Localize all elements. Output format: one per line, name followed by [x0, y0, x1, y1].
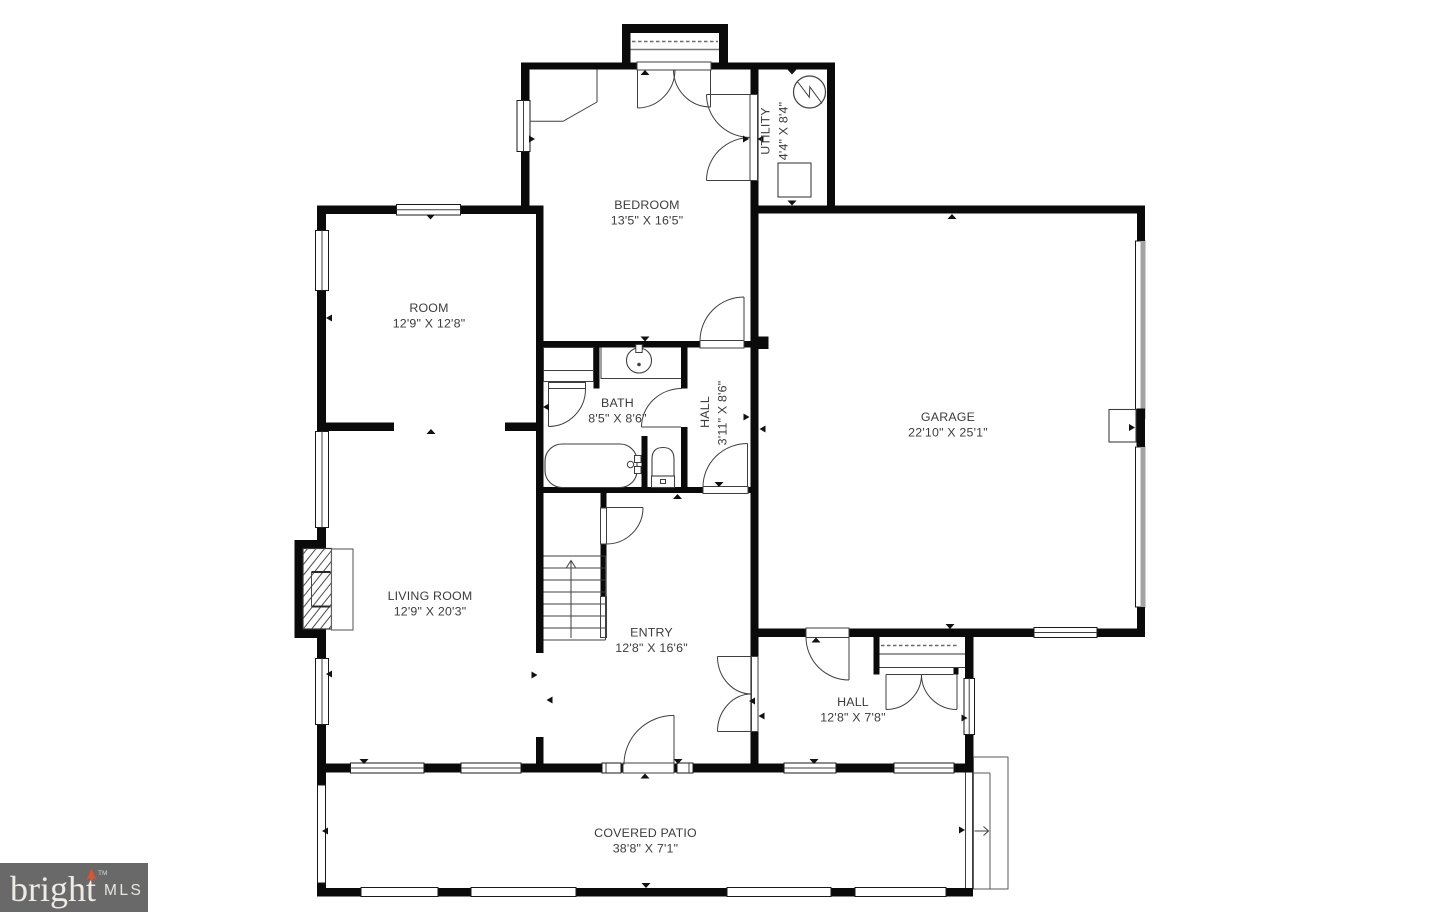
svg-text:12'9" X 20'3": 12'9" X 20'3" — [394, 605, 467, 619]
svg-text:38'8" X 7'1": 38'8" X 7'1" — [613, 842, 679, 856]
svg-text:HALL: HALL — [837, 695, 869, 709]
svg-text:HALL: HALL — [698, 396, 712, 428]
svg-text:BATH: BATH — [601, 396, 634, 410]
svg-text:12'9" X 12'8": 12'9" X 12'8" — [393, 317, 466, 331]
svg-text:TM: TM — [98, 870, 107, 877]
svg-text:UTILITY: UTILITY — [759, 107, 773, 155]
svg-text:bright: bright — [10, 869, 96, 909]
svg-text:4'4" X 8'4": 4'4" X 8'4" — [777, 102, 791, 160]
svg-text:8'5" X 8'6": 8'5" X 8'6" — [588, 412, 646, 426]
svg-text:3'11" X 8'6": 3'11" X 8'6" — [716, 381, 730, 446]
svg-text:22'10" X 25'1": 22'10" X 25'1" — [908, 426, 988, 440]
svg-text:ENTRY: ENTRY — [630, 626, 673, 640]
svg-text:MLS: MLS — [104, 882, 143, 899]
svg-text:BEDROOM: BEDROOM — [614, 198, 679, 212]
svg-text:LIVING ROOM: LIVING ROOM — [388, 589, 473, 603]
svg-text:12'8" X 7'8": 12'8" X 7'8" — [820, 711, 886, 725]
svg-text:ROOM: ROOM — [409, 301, 448, 315]
svg-text:COVERED PATIO: COVERED PATIO — [594, 826, 697, 840]
svg-text:13'5" X 16'5": 13'5" X 16'5" — [611, 214, 684, 228]
svg-text:GARAGE: GARAGE — [921, 410, 975, 424]
svg-text:12'8" X 16'6": 12'8" X 16'6" — [615, 641, 688, 655]
